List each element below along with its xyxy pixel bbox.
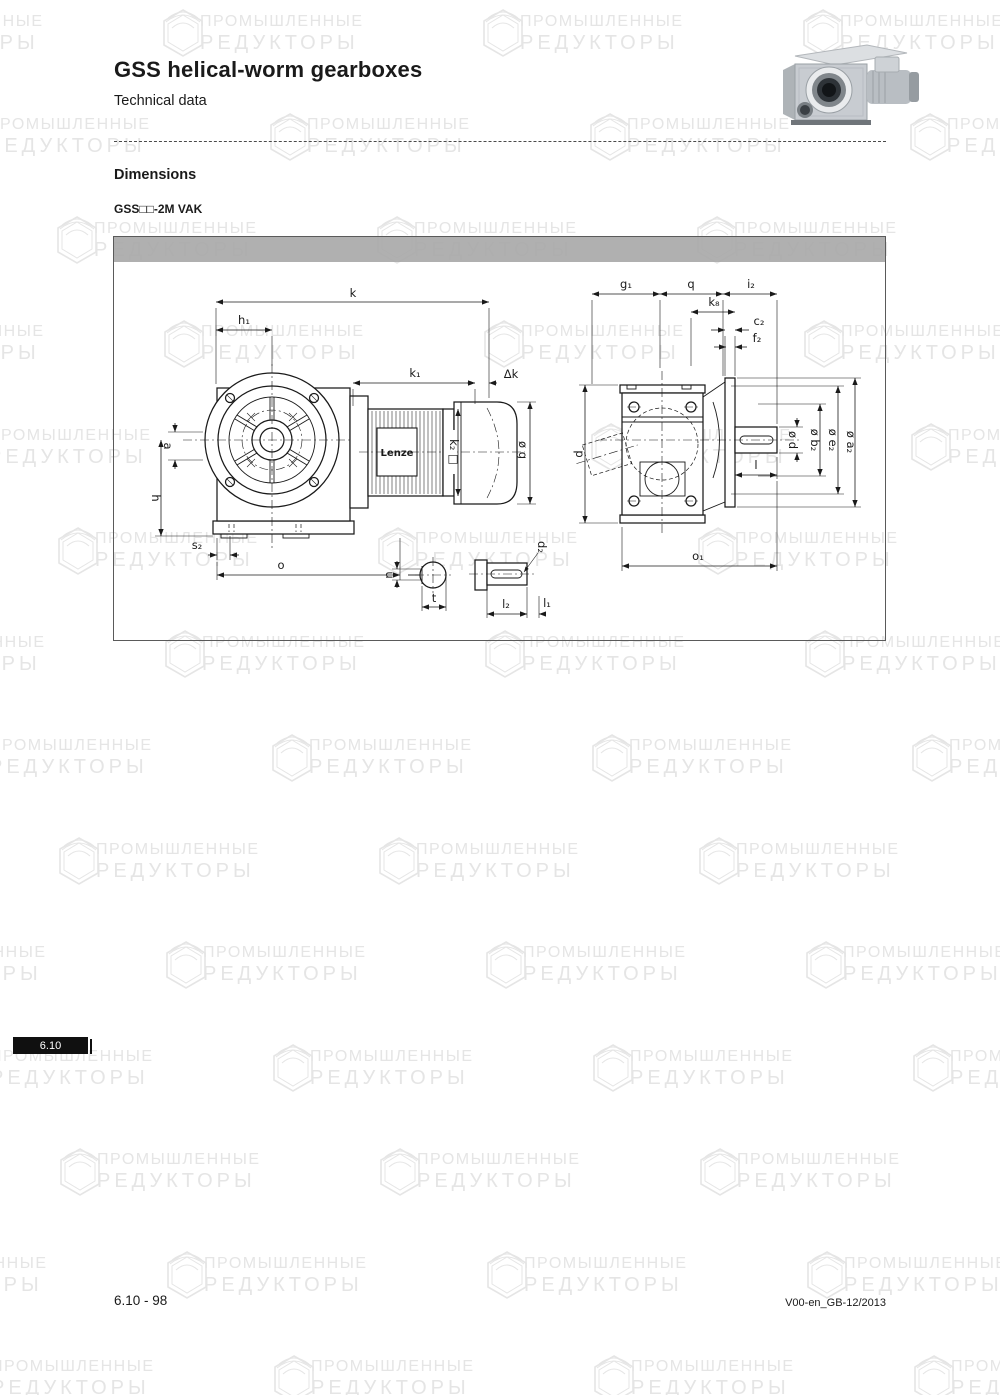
section-heading: Dimensions: [114, 167, 196, 183]
dim-label-k: k: [350, 286, 357, 300]
dim-label-s2: s₂: [192, 538, 203, 552]
right-view-dimensions: g₁ q i₂ k₈ c₂ f₂: [573, 277, 861, 571]
dim-label-l2: l₂: [502, 597, 510, 611]
dim-label-a2: ø a₂: [844, 431, 858, 453]
section-tab-sliver: [90, 1039, 92, 1054]
dim-label-h: h: [149, 494, 163, 501]
shaft-detail: u t d₂ l₂: [383, 541, 551, 618]
dim-label-l: l: [754, 458, 757, 472]
dim-label-o: o: [277, 558, 284, 572]
dim-label-d: ø d: [786, 431, 800, 449]
page-subtitle: Technical data: [114, 93, 207, 109]
dim-label-d2: d₂: [535, 541, 549, 553]
page-content: GSS helical-worm gearboxes Technical dat…: [0, 0, 1000, 1395]
catalog-page: ПРОМЫШЛЕННЫЕРЕДУКТОРЫПРОМЫШЛЕННЫЕРЕДУКТО…: [0, 0, 1000, 1395]
dim-label-k1: k₁: [409, 366, 420, 380]
dimension-drawing: Lenze: [113, 236, 886, 641]
dim-label-u: u: [383, 571, 397, 578]
dim-label-dk: Δk: [504, 367, 519, 381]
dim-label-h1: h₁: [238, 313, 250, 327]
page-title: GSS helical-worm gearboxes: [114, 57, 422, 83]
dim-label-k2: k₂ □: [447, 439, 461, 465]
dim-label-f2: f₂: [753, 331, 762, 345]
dim-label-q: q: [687, 277, 694, 291]
dim-label-k8: k₈: [708, 295, 720, 309]
dim-label-p: p: [573, 450, 587, 457]
dim-label-g: ø g: [516, 441, 530, 459]
left-view-front: Lenze: [183, 364, 525, 548]
footer-page-number: 6.10 - 98: [114, 1293, 167, 1308]
gearbox-photo: [775, 40, 933, 130]
dim-label-e2: ø e₂: [826, 429, 840, 451]
variant-label: GSS□□-2M VAK: [114, 202, 202, 216]
dim-label-i2: i₂: [747, 277, 755, 291]
dim-label-t: t: [432, 591, 437, 605]
dim-label-b2: ø b₂: [808, 429, 822, 452]
dashed-divider: [114, 141, 886, 142]
dim-label-o1: o₁: [692, 549, 704, 563]
dim-label-c2: c₂: [754, 314, 765, 328]
section-tab: 6.10: [13, 1037, 88, 1054]
right-view-side: [572, 371, 801, 536]
brand-label: Lenze: [381, 448, 414, 459]
section-tab-label: 6.10: [40, 1040, 61, 1052]
footer-version: V00-en_GB-12/2013: [785, 1297, 886, 1309]
drawing-svg: Lenze: [113, 236, 886, 641]
dim-label-g1: g₁: [620, 277, 632, 291]
dim-label-a: a: [161, 442, 175, 449]
dim-label-l1: l₁: [543, 596, 551, 610]
drawing-header-bar: [114, 237, 885, 262]
gearbox-photo-svg: [775, 40, 933, 130]
